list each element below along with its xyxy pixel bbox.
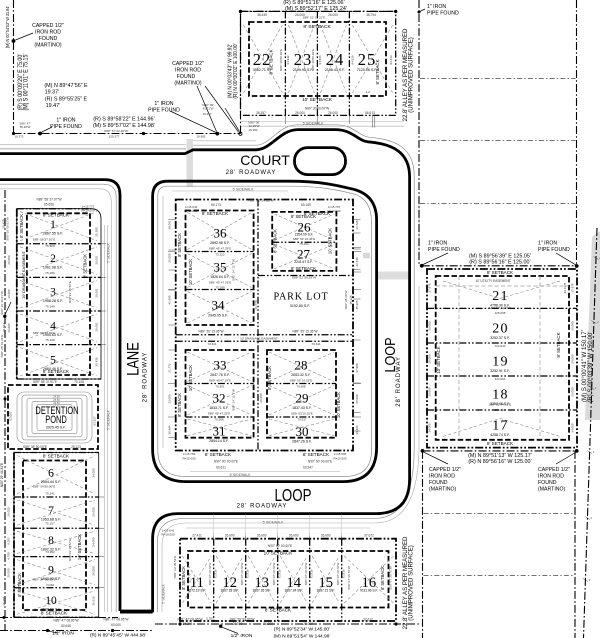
svg-text:70.517: 70.517 <box>297 417 307 421</box>
svg-text:26.000: 26.000 <box>7 255 11 265</box>
svg-text:3252.37 S.F.: 3252.37 S.F. <box>490 336 510 340</box>
svg-text:26.001: 26.001 <box>95 322 99 332</box>
svg-text:2254.09 S.F.: 2254.09 S.F. <box>295 233 314 237</box>
svg-text:S00° 07’ 20.70”W: S00° 07’ 20.70”W <box>304 562 308 585</box>
svg-text:S89° 45’ 47.29”E: S89° 45’ 47.29”E <box>209 246 232 250</box>
svg-text:IRON ROD: IRON ROD <box>175 68 201 74</box>
svg-text:45.325: 45.325 <box>349 295 353 305</box>
svg-text:71.819: 71.819 <box>310 569 314 578</box>
svg-text:125.318: 125.318 <box>495 408 506 412</box>
svg-text:R=10.000: R=10.000 <box>333 457 346 461</box>
svg-text:1" IRON: 1" IRON <box>428 241 447 247</box>
svg-text:7031.06 S.F.: 7031.06 S.F. <box>360 589 379 593</box>
svg-text:S00° 07’ 20.70”W: S00° 07’ 20.70”W <box>272 562 276 585</box>
svg-text:26.000: 26.000 <box>295 13 305 17</box>
svg-text:(M) N 89°51’54” W 144.98’: (M) N 89°51’54” W 144.98’ <box>274 633 331 638</box>
svg-text:25.429: 25.429 <box>2 219 6 229</box>
svg-text:L=15.769: L=15.769 <box>183 452 196 456</box>
svg-text:1" IRON: 1" IRON <box>538 241 557 247</box>
svg-text:70.501: 70.501 <box>215 384 225 388</box>
svg-text:53.527: 53.527 <box>93 416 97 426</box>
svg-text:1867.21 S.F.: 1867.21 S.F. <box>316 589 335 593</box>
svg-text:N90° 00’ 00.00”E: N90° 00’ 00.00”E <box>308 460 332 464</box>
svg-text:32: 32 <box>213 391 226 406</box>
svg-text:8' SETBACK: 8' SETBACK <box>303 452 330 457</box>
svg-text:S89° 58’37.91”E: S89° 58’37.91”E <box>33 331 56 335</box>
svg-text:PIPE FOUND: PIPE FOUND <box>428 247 460 253</box>
svg-text:(M) S 89°56’39” E 125.05’: (M) S 89°56’39” E 125.05’ <box>469 253 531 259</box>
svg-text:FOUND: FOUND <box>429 480 448 486</box>
svg-text:10' SETBACK: 10' SETBACK <box>188 259 193 285</box>
svg-text:N00° 30’00.30”E: N00° 30’00.30”E <box>311 49 315 71</box>
svg-text:2: 2 <box>50 253 56 265</box>
svg-text:26.001: 26.001 <box>95 255 99 265</box>
svg-text:26.000: 26.000 <box>7 323 11 333</box>
svg-text:8' SETBACK: 8' SETBACK <box>273 229 278 253</box>
svg-text:S00° 07’ 20.70”W: S00° 07’ 20.70”W <box>336 562 340 585</box>
svg-text:S00° 07’ 20.70”W: S00° 07’ 20.70”W <box>389 566 393 590</box>
svg-text:70.608: 70.608 <box>296 384 306 388</box>
svg-text:N00°23’ 35.52”E: N00°23’ 35.52”E <box>68 281 72 303</box>
svg-text:34: 34 <box>212 298 226 313</box>
svg-text:2867.55 S.F.: 2867.55 S.F. <box>43 231 63 235</box>
svg-text:124.943: 124.943 <box>495 344 506 348</box>
svg-text:94.539: 94.539 <box>350 55 354 65</box>
svg-text:74.952: 74.952 <box>45 550 55 554</box>
svg-text:N89° 47’ 08.95”W: N89° 47’ 08.95”W <box>53 618 78 622</box>
svg-text:8' SETBACK: 8' SETBACK <box>303 24 331 30</box>
svg-text:9: 9 <box>48 565 54 577</box>
svg-text:N00° 25’ 44.34”E: N00° 25’ 44.34”E <box>0 335 4 358</box>
svg-text:PIPE FOUND: PIPE FOUND <box>427 11 459 17</box>
svg-text:(UNIMPROVED SURFACE): (UNIMPROVED SURFACE) <box>407 545 414 621</box>
svg-text:26.000: 26.000 <box>263 622 273 626</box>
svg-text:1/2" IRON: 1/2" IRON <box>52 631 74 637</box>
svg-text:CAPPED 1/2": CAPPED 1/2" <box>538 467 570 473</box>
svg-text:36.449: 36.449 <box>257 13 267 17</box>
svg-text:COURT: COURT <box>240 152 290 168</box>
svg-text:28' ROADWAY: 28' ROADWAY <box>237 504 288 510</box>
svg-text:8' SETBACK: 8' SETBACK <box>556 332 561 357</box>
svg-text:3: 3 <box>50 287 56 299</box>
svg-text:31: 31 <box>213 424 226 439</box>
svg-text:1867.26 S.F.: 1867.26 S.F. <box>252 589 271 593</box>
svg-text:IRON ROD: IRON ROD <box>429 474 455 480</box>
svg-text:28.001: 28.001 <box>168 220 172 230</box>
svg-text:S89° 52’ 17.21”E: S89° 52’ 17.21”E <box>303 16 326 20</box>
svg-text:5' SIDEWALK: 5' SIDEWALK <box>107 409 111 429</box>
svg-text:28' ROADWAY: 28' ROADWAY <box>143 352 149 403</box>
svg-text:35: 35 <box>214 260 227 275</box>
svg-text:10' SETBACK: 10' SETBACK <box>302 97 333 103</box>
svg-text:N00° 23’ 35.52”E: N00° 23’ 35.52”E <box>173 556 177 579</box>
svg-text:4258.74 S.F.: 4258.74 S.F. <box>490 433 510 437</box>
svg-text:18: 18 <box>492 388 509 403</box>
svg-text:70.568: 70.568 <box>214 417 224 421</box>
svg-text:8' SETBACK: 8' SETBACK <box>375 59 380 84</box>
svg-text:28' ROADWAY: 28' ROADWAY <box>396 356 402 407</box>
svg-text:R=10.000: R=10.000 <box>327 209 340 213</box>
svg-text:IRON ROD: IRON ROD <box>538 474 564 480</box>
svg-text:52.007: 52.007 <box>9 411 13 421</box>
svg-text:94.566: 94.566 <box>318 55 322 65</box>
svg-text:26.000: 26.000 <box>92 507 96 517</box>
svg-text:29: 29 <box>296 391 309 406</box>
svg-text:CAPPED 1/2": CAPPED 1/2" <box>172 61 204 67</box>
svg-text:22.448: 22.448 <box>355 257 359 267</box>
svg-text:(R) S 89°56’16” E 125.00’: (R) S 89°56’16” E 125.00’ <box>469 260 531 266</box>
svg-text:36.357: 36.357 <box>256 111 266 115</box>
svg-text:2854.14 S.F.: 2854.14 S.F. <box>209 439 229 443</box>
svg-text:(MARTINO): (MARTINO) <box>429 487 457 493</box>
svg-text:8' SETBACK: 8' SETBACK <box>267 366 272 390</box>
svg-text:8' SETBACK: 8' SETBACK <box>202 211 229 216</box>
svg-text:63.000: 63.000 <box>111 623 121 627</box>
svg-text:10' SETBACK: 10' SETBACK <box>77 534 82 560</box>
svg-text:75.157: 75.157 <box>45 522 55 526</box>
svg-text:125.008: 125.008 <box>495 311 506 315</box>
svg-text:34.000: 34.000 <box>92 468 96 478</box>
svg-text:63.947: 63.947 <box>303 466 313 470</box>
svg-text:10' SETBACK: 10' SETBACK <box>188 365 193 391</box>
svg-text:S89° 53’ 34.46”E: S89° 53’ 34.46”E <box>293 237 316 241</box>
svg-text:34.000: 34.000 <box>428 423 432 433</box>
svg-text:26.000: 26.000 <box>225 534 235 538</box>
svg-text:5' SIDEWALK: 5' SIDEWALK <box>162 583 166 603</box>
svg-text:65.656: 65.656 <box>44 203 54 207</box>
svg-text:37.975: 37.975 <box>428 283 432 293</box>
svg-text:17: 17 <box>492 419 509 434</box>
svg-text:75.249: 75.249 <box>45 304 55 308</box>
svg-text:N00°23’ 35.52”E: N00°23’ 35.52”E <box>68 539 72 561</box>
svg-text:PARK LOT: PARK LOT <box>274 292 329 303</box>
svg-text:CAPPED 1/2": CAPPED 1/2" <box>32 23 64 29</box>
svg-text:S89° 38’ 50.00”E: S89° 38’ 50.00”E <box>23 445 47 449</box>
svg-text:S89° 55’16.25”E: S89° 55’16.25”E <box>291 411 313 415</box>
svg-text:71.819: 71.819 <box>214 569 218 578</box>
svg-text:(M) S 00°11’01” E 75.15’: (M) S 00°11’01” E 75.15’ <box>23 53 30 110</box>
svg-text:26.000: 26.000 <box>92 566 96 576</box>
svg-text:20: 20 <box>492 322 509 337</box>
svg-text:3252.91 S.F.: 3252.91 S.F. <box>490 369 510 373</box>
svg-text:S89° 45’47.29”E: S89° 45’47.29”E <box>209 378 231 382</box>
svg-text:N89° 47’ 08.95”W: N89° 47’ 08.95”W <box>177 618 202 622</box>
svg-text:(MARTINO): (MARTINO) <box>174 81 202 87</box>
svg-text:R=10.000: R=10.000 <box>182 457 195 461</box>
svg-text:S89° 55’ 16.25”E: S89° 55’ 16.25”E <box>290 378 313 382</box>
svg-text:75.289: 75.289 <box>215 285 225 289</box>
svg-text:2847.26 S.F.: 2847.26 S.F. <box>292 439 312 443</box>
svg-text:5' SIDEWALK: 5' SIDEWALK <box>107 242 111 262</box>
svg-text:N00° 25’ 44.34”E: N00° 25’ 44.34”E <box>0 463 4 487</box>
svg-text:35.351: 35.351 <box>2 596 6 606</box>
svg-text:(R) N 89°56’16” W 125.00’: (R) N 89°56’16” W 125.00’ <box>468 459 531 465</box>
svg-text:26.000: 26.000 <box>571 387 575 397</box>
svg-text:31.728: 31.728 <box>355 220 359 230</box>
svg-text:75.108: 75.108 <box>74 380 84 384</box>
svg-text:34.000: 34.000 <box>571 423 575 433</box>
svg-text:N89° 30’00.00”W: N89° 30’00.00”W <box>305 107 329 111</box>
svg-text:26.000: 26.000 <box>168 394 172 404</box>
svg-text:75.128: 75.128 <box>45 338 55 342</box>
svg-text:1: 1 <box>50 219 56 231</box>
svg-text:2892.98 S.F.: 2892.98 S.F. <box>210 241 230 245</box>
svg-text:2241.67 S.F.: 2241.67 S.F. <box>294 260 313 264</box>
svg-text:50.648: 50.648 <box>61 624 71 628</box>
svg-text:1826.64 S.F.: 1826.64 S.F. <box>210 275 230 279</box>
svg-text:N89° 55’ 15.36”W: N89° 55’ 15.36”W <box>198 330 223 334</box>
svg-text:125.377: 125.377 <box>109 135 120 139</box>
svg-text:8: 8 <box>48 535 54 547</box>
svg-text:S89° 52’ 56.36”W: S89° 52’ 56.36”W <box>292 276 316 280</box>
svg-text:24.000: 24.000 <box>92 537 96 547</box>
svg-text:75.253: 75.253 <box>299 242 309 246</box>
svg-text:60.173: 60.173 <box>211 203 221 207</box>
svg-text:8' SETBACK: 8' SETBACK <box>269 49 274 74</box>
svg-text:27.411: 27.411 <box>192 534 202 538</box>
svg-text:FOUND: FOUND <box>177 74 196 80</box>
svg-text:5' SIDEWALK: 5' SIDEWALK <box>263 521 285 525</box>
svg-text:26.001: 26.001 <box>95 288 99 298</box>
svg-text:POND: POND <box>45 412 67 425</box>
svg-text:8' SETBACK: 8' SETBACK <box>177 233 182 257</box>
svg-text:IRON ROD: IRON ROD <box>35 30 61 36</box>
svg-text:26.000: 26.000 <box>233 622 243 626</box>
svg-text:26.000: 26.000 <box>257 534 267 538</box>
svg-text:6: 6 <box>48 467 54 479</box>
svg-text:28: 28 <box>295 358 308 373</box>
svg-text:10' UTILITY EASEMENT: 10' UTILITY EASEMENT <box>475 279 510 283</box>
svg-text:124.961: 124.961 <box>495 377 506 381</box>
svg-text:10' SETBACK: 10' SETBACK <box>264 551 294 556</box>
svg-text:N89° 57’ 02.26"W: N89° 57’ 02.26"W <box>104 129 128 133</box>
svg-text:25.385: 25.385 <box>95 227 99 237</box>
svg-text:(R) N 89°52’34” W 145.00’: (R) N 89°52’34” W 145.00’ <box>274 626 330 632</box>
svg-text:8' SETBACK: 8' SETBACK <box>487 270 514 275</box>
svg-text:10' SETBACK: 10' SETBACK <box>436 346 441 374</box>
svg-text:8' SETBACK: 8' SETBACK <box>41 610 68 615</box>
svg-text:8' SETBACK: 8' SETBACK <box>43 213 70 218</box>
svg-text:41.770: 41.770 <box>254 300 258 310</box>
svg-text:5' SIDEWALK: 5' SIDEWALK <box>233 188 255 192</box>
svg-text:94.942: 94.942 <box>286 55 290 65</box>
svg-text:2554.44 S.F.: 2554.44 S.F. <box>41 480 61 484</box>
svg-text:CAPPED 1/2": CAPPED 1/2" <box>429 467 461 473</box>
svg-text:5' SIDEWALK: 5' SIDEWALK <box>230 473 252 477</box>
svg-text:74.80: 74.80 <box>46 583 54 587</box>
svg-text:FOUND: FOUND <box>538 480 557 486</box>
svg-text:(R) S 89°58’22” E 144.96’: (R) S 89°58’22” E 144.96’ <box>93 117 155 123</box>
svg-text:15.392: 15.392 <box>248 128 258 132</box>
svg-text:33: 33 <box>214 358 227 373</box>
svg-text:5: 5 <box>50 354 56 366</box>
svg-text:26.000: 26.000 <box>7 507 11 517</box>
svg-text:9.201: 9.201 <box>7 537 11 545</box>
svg-text:8' SETBACK: 8' SETBACK <box>380 566 385 590</box>
svg-text:30: 30 <box>296 424 309 439</box>
svg-text:N89° 55’ 15.36”W: N89° 55’ 15.36”W <box>292 330 317 334</box>
svg-text:30.494: 30.494 <box>355 425 359 435</box>
svg-text:75.269: 75.269 <box>45 271 55 275</box>
svg-text:1" IRON: 1" IRON <box>427 4 446 10</box>
svg-text:19: 19 <box>492 355 509 370</box>
svg-text:1961.98 S.F.: 1961.98 S.F. <box>43 266 63 270</box>
svg-text:19.47’: 19.47’ <box>46 103 61 109</box>
svg-text:N00° 30’00.30”E: N00° 30’00.30”E <box>279 49 283 71</box>
svg-text:(R) N 89°45’45” W 444.98’: (R) N 89°45’45” W 444.98’ <box>90 633 146 638</box>
svg-text:26.000: 26.000 <box>428 387 432 397</box>
svg-text:S89° 34’ 50.00”E: S89° 34’ 50.00”E <box>32 578 55 582</box>
svg-text:25.123: 25.123 <box>71 445 81 449</box>
svg-text:S89° 49’ 47.29”E: S89° 49’ 47.29”E <box>208 411 231 415</box>
svg-text:75.529: 75.529 <box>45 244 55 248</box>
svg-text:8' SETBACK: 8' SETBACK <box>43 454 70 459</box>
svg-text:56.613: 56.613 <box>365 111 375 115</box>
svg-text:41.995: 41.995 <box>168 295 172 305</box>
svg-text:(R) S 89°55’25” E: (R) S 89°55’25” E <box>45 97 88 103</box>
svg-text:23: 23 <box>294 50 313 69</box>
svg-text:8' SETBACK: 8' SETBACK <box>487 441 514 446</box>
svg-text:7: 7 <box>48 505 54 517</box>
svg-text:S89° 52’ 44.15”E: S89° 52’ 44.15”E <box>489 403 512 407</box>
svg-text:25: 25 <box>358 50 377 69</box>
svg-text:36: 36 <box>214 226 228 241</box>
svg-text:8' SETBACK: 8' SETBACK <box>83 254 88 278</box>
svg-text:26.000: 26.000 <box>355 394 359 404</box>
svg-text:1833.71 S.F.: 1833.71 S.F. <box>209 406 229 410</box>
svg-text:94.443: 94.443 <box>389 55 393 65</box>
svg-text:55.48’W: 55.48’W <box>20 125 31 129</box>
svg-text:26.000: 26.000 <box>571 321 575 331</box>
svg-text:19.373: 19.373 <box>15 135 24 139</box>
svg-text:75.141: 75.141 <box>45 491 55 495</box>
svg-text:N89° 56’ 14.63”W: N89° 56’ 14.63”W <box>248 199 273 203</box>
svg-text:S89° 36’ 30.63”W: S89° 36’ 30.63”W <box>0 291 4 315</box>
svg-text:PIPE FOUND: PIPE FOUND <box>538 247 570 253</box>
svg-text:71.819: 71.819 <box>246 569 250 578</box>
svg-text:S00° 07’ 20.70”W: S00° 07’ 20.70”W <box>240 562 244 585</box>
svg-text:8' SETBACK: 8' SETBACK <box>265 608 292 613</box>
svg-text:(MARTINO): (MARTINO) <box>538 487 566 493</box>
svg-text:26.000: 26.000 <box>289 534 299 538</box>
svg-text:1958.28 S.F.: 1958.28 S.F. <box>43 299 63 303</box>
svg-text:S89° 34’50.00”E: S89° 34’50.00”E <box>33 485 56 489</box>
svg-text:8' SETBACK: 8' SETBACK <box>205 452 232 457</box>
svg-text:30.494: 30.494 <box>168 425 172 435</box>
svg-text:L=15.595: L=15.595 <box>334 452 347 456</box>
svg-text:5.357: 5.357 <box>206 616 214 620</box>
svg-text:S00° 28.30”W: S00° 28.30”W <box>344 290 348 309</box>
svg-text:19.477: 19.477 <box>202 112 212 116</box>
svg-text:70.441: 70.441 <box>207 342 217 346</box>
svg-text:37.975: 37.975 <box>571 283 575 293</box>
svg-text:35.435: 35.435 <box>95 357 99 367</box>
svg-text:8' SETBACK: 8' SETBACK <box>181 566 186 590</box>
svg-text:PIPE FOUND: PIPE FOUND <box>50 124 82 130</box>
svg-text:71.819: 71.819 <box>342 569 346 578</box>
svg-text:S00° 07’ 20.70”W: S00° 07’ 20.70”W <box>347 566 351 590</box>
svg-text:60.621: 60.621 <box>216 466 226 470</box>
svg-text:8' SETBACK: 8' SETBACK <box>177 393 182 417</box>
svg-text:26.000: 26.000 <box>328 111 338 115</box>
svg-text:60.169: 60.169 <box>301 203 311 207</box>
svg-text:N89° 58’ 37.97”W: N89° 58’ 37.97”W <box>36 197 61 201</box>
svg-text:3925.45 S.F.: 3925.45 S.F. <box>46 426 66 430</box>
svg-text:61.779: 61.779 <box>188 573 192 583</box>
svg-text:(M) N 00°04’03” W 31.84’: (M) N 00°04’03” W 31.84’ <box>5 6 10 48</box>
svg-text:26.000: 26.000 <box>328 13 338 17</box>
svg-text:(R) S 00°03’39” W 150.00’: (R) S 00°03’39” W 150.00’ <box>586 331 594 403</box>
svg-text:(R) N 00°00’02” E 100.00’: (R) N 00°00’02” E 100.00’ <box>233 43 240 98</box>
svg-text:26.000: 26.000 <box>7 289 11 299</box>
svg-text:1837.43 S.F.: 1837.43 S.F. <box>292 406 312 410</box>
svg-text:(MARTINO): (MARTINO) <box>34 43 62 49</box>
svg-text:2.2': 2.2' <box>366 90 371 94</box>
svg-text:21: 21 <box>492 289 509 304</box>
svg-text:2945.05 S.F.: 2945.05 S.F. <box>208 314 228 318</box>
svg-text:37.612: 37.612 <box>363 618 373 622</box>
svg-text:R=10.000: R=10.000 <box>161 533 174 537</box>
svg-text:26.000: 26.000 <box>428 321 432 331</box>
svg-text:8' SETBACK: 8' SETBACK <box>17 573 22 597</box>
svg-text:LANE: LANE <box>125 342 143 376</box>
svg-text:10' SETBACK: 10' SETBACK <box>336 392 341 418</box>
svg-text:70.431: 70.431 <box>311 342 321 346</box>
svg-text:S89° 58’37.91”E: S89° 58’37.91”E <box>33 238 56 242</box>
svg-text:S00° 14’ 12.7”W: S00° 14’ 12.7”W <box>232 259 236 281</box>
svg-text:37.988: 37.988 <box>355 363 359 373</box>
svg-text:1" IRON: 1" IRON <box>56 118 75 124</box>
svg-text:3192.80 S.F.: 3192.80 S.F. <box>290 304 310 308</box>
svg-text:75.222: 75.222 <box>215 252 225 256</box>
svg-text:26.000: 26.000 <box>168 253 172 263</box>
svg-text:4.795: 4.795 <box>7 552 11 560</box>
svg-text:1" IRON: 1" IRON <box>154 101 173 107</box>
svg-text:71.819: 71.819 <box>278 569 282 578</box>
svg-text:S89° 59’ 52.99”W: S89° 59’ 52.99”W <box>230 618 255 622</box>
svg-text:S00° 14’ 12.7”W: S00° 14’ 12.7”W <box>232 389 236 411</box>
svg-text:26.000: 26.000 <box>7 568 11 578</box>
svg-text:36.794: 36.794 <box>366 13 376 17</box>
svg-text:26.1178: 26.1178 <box>563 282 567 293</box>
svg-text:24: 24 <box>326 50 345 69</box>
svg-text:26.000: 26.000 <box>321 534 331 538</box>
svg-text:8' SETBACK: 8' SETBACK <box>291 266 316 271</box>
svg-text:34.344: 34.344 <box>183 622 193 626</box>
svg-text:10: 10 <box>45 595 57 607</box>
svg-text:10' DRAINAGE EASEMENT: 10' DRAINAGE EASEMENT <box>22 250 26 298</box>
svg-text:26.544: 26.544 <box>2 323 6 333</box>
svg-text:35.616: 35.616 <box>92 596 96 606</box>
svg-text:26.000: 26.000 <box>571 354 575 364</box>
svg-text:37.672: 37.672 <box>364 534 374 538</box>
svg-text:(UNIMPROVED SURFACE): (UNIMPROVED SURFACE) <box>407 37 414 113</box>
svg-text:R=10.000: R=10.000 <box>184 209 197 213</box>
svg-text:8' SETBACK: 8' SETBACK <box>43 369 70 374</box>
svg-text:2653.32 S.F.: 2653.32 S.F. <box>291 373 311 377</box>
svg-text:41.71’W: 41.71’W <box>202 107 213 111</box>
svg-text:(M) N 89°51’13” W 125.17’: (M) N 89°51’13” W 125.17’ <box>468 453 532 459</box>
svg-text:5' SIDEWALK: 5' SIDEWALK <box>303 122 325 126</box>
svg-text:26.000: 26.000 <box>259 393 263 403</box>
svg-text:8' SETBACK: 8' SETBACK <box>19 214 24 238</box>
svg-text:N89° 47’ 08.95”W: N89° 47’ 08.95”W <box>103 617 128 621</box>
svg-text:10' DRAINAGE EASEMENT: 10' DRAINAGE EASEMENT <box>240 337 278 341</box>
svg-text:FOUND: FOUND <box>39 36 58 42</box>
svg-text:19.905: 19.905 <box>197 135 206 139</box>
svg-text:N90° 00’ 00.00”E: N90° 00’ 00.00”E <box>214 460 238 464</box>
svg-text:26.000: 26.000 <box>428 354 432 364</box>
